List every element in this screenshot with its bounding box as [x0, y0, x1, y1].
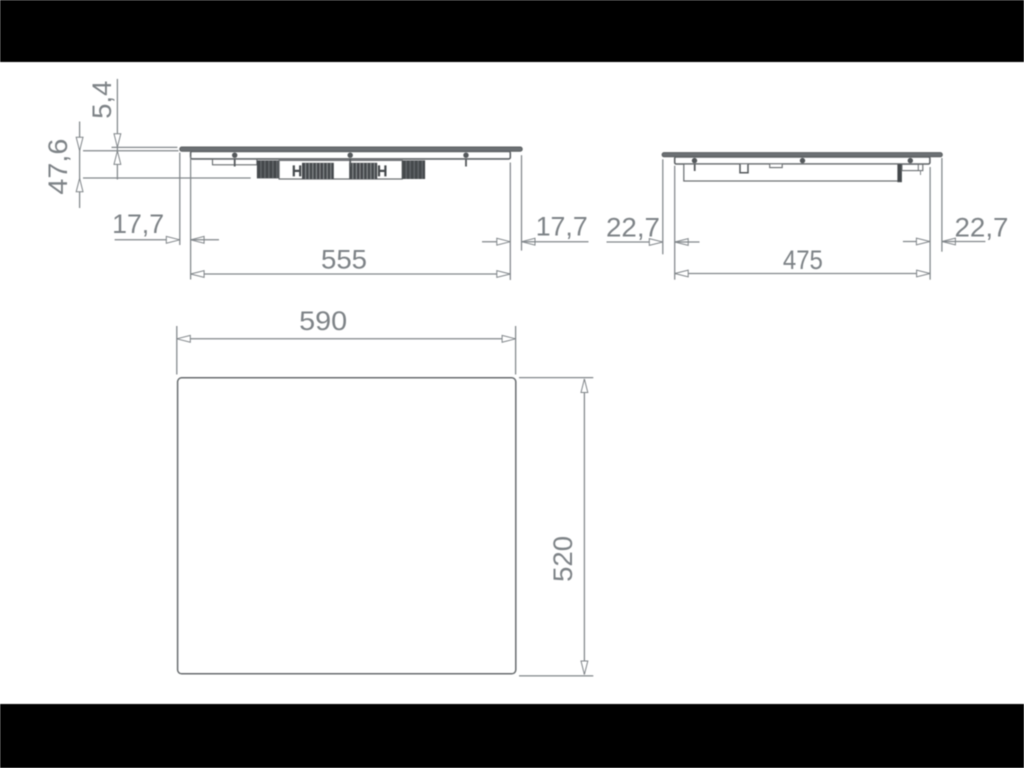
svg-text:590: 590: [299, 306, 347, 336]
svg-text:17,7: 17,7: [112, 209, 164, 239]
svg-text:475: 475: [783, 245, 823, 275]
svg-text:47,6: 47,6: [43, 139, 73, 195]
svg-text:17,7: 17,7: [536, 212, 588, 242]
svg-text:5,4: 5,4: [87, 81, 117, 119]
svg-text:22,7: 22,7: [955, 213, 1009, 243]
svg-text:555: 555: [321, 244, 367, 274]
svg-text:520: 520: [548, 536, 578, 582]
svg-text:22,7: 22,7: [606, 212, 660, 242]
